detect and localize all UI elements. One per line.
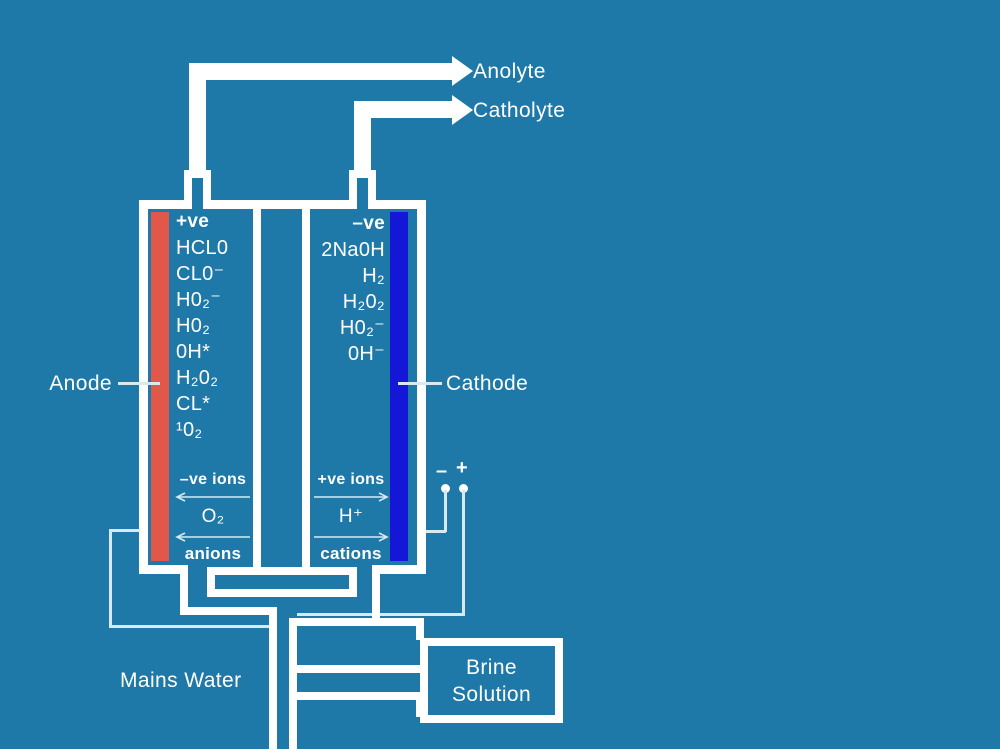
brine-channel-top-wall (297, 665, 424, 673)
cathode-ion-flow-block: +ve ions H⁺ cations (309, 470, 393, 564)
anode-species-column: +ve HCL0 CL0⁻ H0₂⁻ H0₂ 0H* H₂0₂ CL* ¹0₂ (176, 209, 228, 443)
cathode-flow-species: H⁺ (309, 504, 393, 530)
cathode-species-item: H₂0₂ (259, 289, 385, 315)
anode-wire-horizontal-top (109, 529, 140, 532)
anode-label: Anode (40, 372, 112, 396)
funnel-left-horizontal-wall (180, 607, 277, 615)
anode-species-item: HCL0 (176, 235, 228, 261)
right-arrow-icon (312, 492, 390, 502)
catholyte-pipe-horizontal (354, 101, 452, 118)
anode-wire-horizontal-bottom (109, 625, 270, 628)
right-arrow-icon (312, 532, 390, 542)
cell-top-wall-segment-1 (139, 200, 192, 209)
anolyte-pipe-vertical (189, 63, 206, 178)
positive-wire-horizontal (297, 613, 464, 616)
brine-solution-label: Brine Solution (452, 654, 531, 708)
anode-species-item: CL* (176, 391, 228, 417)
cell-left-wall (139, 200, 148, 574)
anolyte-pipe-horizontal (189, 63, 452, 80)
funnel-right-horizontal-wall (289, 618, 424, 626)
left-arrow-icon (174, 492, 252, 502)
cathode-species-item: 0H⁻ (259, 341, 385, 367)
cell-top-wall-segment-2 (203, 200, 357, 209)
electrolysis-cell-diagram: Anolyte Catholyte Anode Cathode +ve HCL0… (0, 0, 1000, 749)
cathode-species-item: H₂ (259, 263, 385, 289)
inlet-pipe-left-wall (269, 607, 277, 749)
cathode-callout-line (398, 382, 442, 385)
cathode-ions-label: +ve ions (309, 470, 393, 490)
cell-bottom-wall-left (139, 565, 188, 574)
cell-top-wall-segment-3 (368, 200, 426, 209)
outlet-manifold-baffle (207, 567, 357, 597)
anode-wire-vertical (109, 529, 112, 628)
cathode-label: Cathode (446, 372, 528, 396)
inlet-pipe-right-wall (289, 618, 297, 749)
cathode-species-item: 2Na0H (259, 237, 385, 263)
cell-bottom-wall-right (372, 565, 426, 574)
cathode-species-column: –ve 2Na0H H₂ H₂0₂ H0₂⁻ 0H⁻ (259, 211, 385, 367)
brine-label-line2: Solution (452, 681, 531, 708)
anolyte-arrow-icon (452, 56, 473, 86)
negative-wire-horizontal (426, 530, 446, 533)
catholyte-arrow-icon (452, 95, 473, 125)
negative-terminal-sign: – (436, 461, 447, 481)
anode-polarity-label: +ve (176, 209, 228, 235)
cathode-species-item: H0₂⁻ (259, 315, 385, 341)
anode-species-item: H0₂ (176, 313, 228, 339)
brine-label-line1: Brine (452, 654, 531, 681)
anolyte-label: Anolyte (473, 60, 546, 84)
anode-species-item: H0₂⁻ (176, 287, 228, 313)
mains-water-label: Mains Water (120, 669, 241, 693)
anode-species-item: CL0⁻ (176, 261, 228, 287)
anode-species-item: 0H* (176, 339, 228, 365)
anode-ions-label: –ve ions (171, 470, 255, 490)
cathode-polarity-label: –ve (259, 211, 385, 237)
anode-flow-species: O₂ (171, 504, 255, 530)
anode-ion-name: anions (171, 544, 255, 564)
anode-species-item: ¹0₂ (176, 417, 228, 443)
brine-channel-bottom-wall (297, 692, 424, 700)
anode-callout-line (118, 382, 160, 385)
anode-ion-flow-block: –ve ions O₂ anions (171, 470, 255, 564)
anode-electrode-bar (151, 212, 169, 561)
brine-upper-jog-wall (416, 618, 424, 640)
cathode-ion-name: cations (309, 544, 393, 564)
brine-solution-box: Brine Solution (420, 638, 563, 723)
cell-right-wall (417, 200, 426, 574)
positive-terminal-sign: + (456, 458, 468, 478)
negative-wire-vertical (444, 490, 447, 532)
catholyte-label: Catholyte (473, 99, 565, 123)
positive-wire-vertical (462, 490, 465, 616)
anode-species-item: H₂0₂ (176, 365, 228, 391)
left-arrow-icon (174, 532, 252, 542)
